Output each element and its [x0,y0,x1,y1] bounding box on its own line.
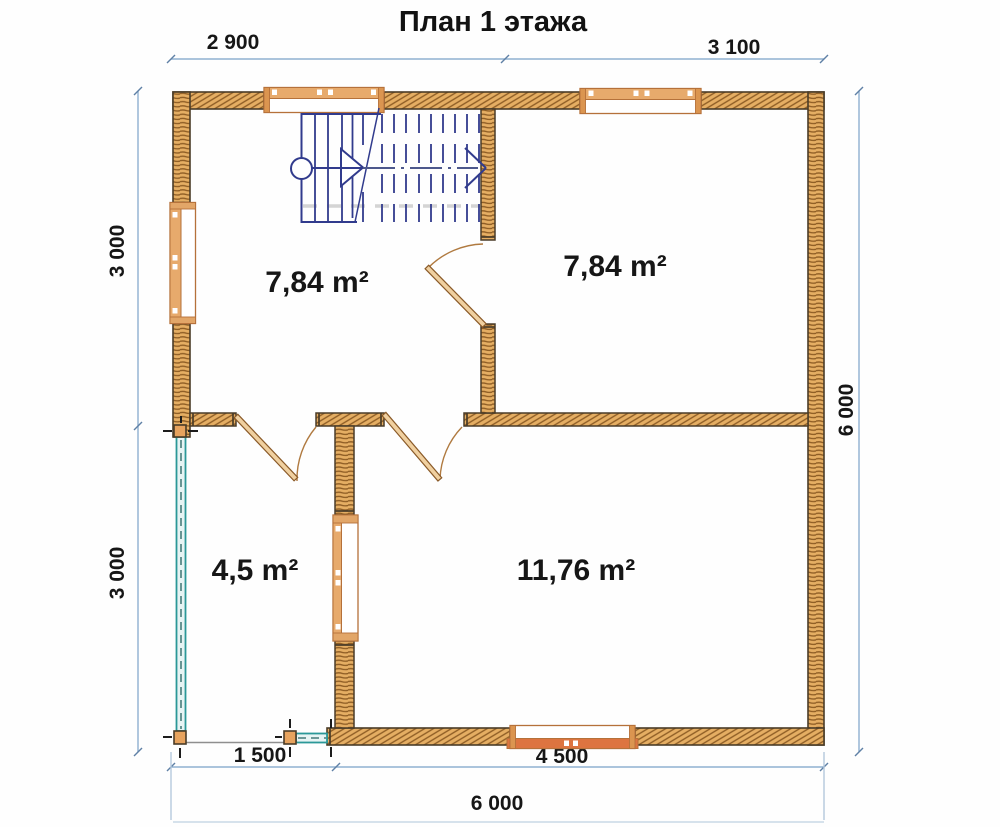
svg-text:4,5 m²: 4,5 m² [212,554,299,587]
svg-text:11,76 m²: 11,76 m² [517,554,635,587]
svg-text:3 000: 3 000 [106,225,129,278]
svg-text:2 900: 2 900 [207,31,260,54]
svg-text:6 000: 6 000 [835,384,858,437]
svg-text:План 1 этажа: План 1 этажа [399,6,588,38]
svg-text:3 100: 3 100 [708,36,761,59]
svg-text:7,84 m²: 7,84 m² [563,250,666,283]
svg-text:1 500: 1 500 [234,744,287,767]
svg-text:3 000: 3 000 [106,547,129,600]
svg-text:6 000: 6 000 [471,792,524,815]
svg-text:7,84 m²: 7,84 m² [265,266,368,299]
